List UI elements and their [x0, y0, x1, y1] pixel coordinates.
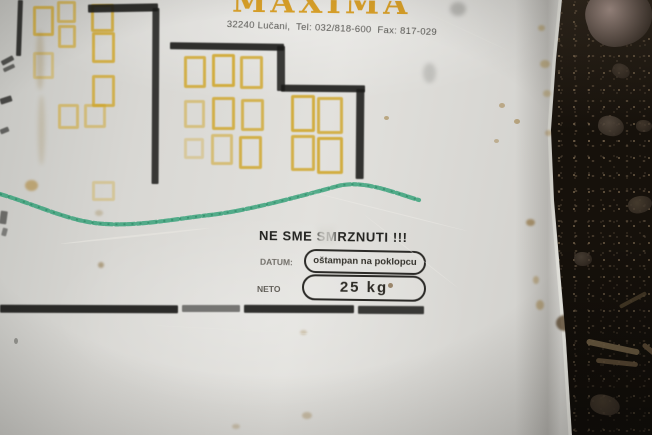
window-mark [291, 95, 315, 132]
stain-mark [98, 262, 104, 268]
building-line [3, 64, 16, 73]
building-line [281, 85, 365, 93]
faded-ink-smudge [318, 227, 335, 245]
neto-value-pill: 25 kg [302, 274, 426, 302]
stain-mark [514, 119, 520, 124]
window-mark [92, 181, 115, 201]
stain-mark [300, 330, 307, 335]
stain-mark [60, 227, 209, 245]
building-line [0, 126, 10, 134]
building-line [170, 42, 284, 51]
building-line [244, 305, 354, 313]
building-line [356, 89, 365, 179]
building-line [0, 211, 8, 225]
building-line [358, 306, 424, 314]
window-mark [57, 1, 76, 23]
window-mark [291, 135, 315, 171]
stain-mark [25, 180, 38, 191]
stain-mark [232, 424, 240, 429]
stain-mark [384, 116, 389, 120]
building-line [16, 0, 23, 56]
building-graphic [0, 0, 652, 435]
neto-label: NETO [257, 284, 280, 294]
building-line [277, 46, 285, 91]
gravel-debris [0, 0, 652, 435]
stain-mark [533, 276, 539, 284]
window-mark [211, 134, 233, 165]
stain-mark [302, 412, 312, 419]
neto-value: 25 kg [340, 279, 389, 297]
datum-label: DATUM: [260, 257, 293, 268]
stain-mark [494, 139, 499, 143]
building-line [0, 305, 178, 314]
window-mark [92, 32, 115, 63]
stain-mark [540, 60, 550, 68]
stain-mark [538, 25, 545, 31]
stain-mark [499, 103, 505, 108]
window-mark [212, 97, 235, 130]
stain-mark [38, 95, 45, 165]
building-line [1, 55, 15, 66]
stain-mark [450, 2, 466, 16]
window-mark [240, 56, 263, 89]
window-mark [317, 97, 343, 134]
brand-logo: MAXIMA [232, 0, 422, 20]
stain-mark [536, 300, 544, 310]
brand-text: MAXIMA [232, 0, 422, 20]
stain-mark [150, 325, 350, 336]
stain-mark [302, 189, 467, 231]
window-mark [58, 104, 79, 129]
window-mark [241, 99, 264, 131]
address-line: 32240 Lučani, Tel: 032/818-600 Fax: 817-… [227, 19, 438, 38]
window-mark [184, 56, 206, 88]
vignette-overlay [0, 0, 652, 435]
datum-value-pill: oštampan na poklopcu [304, 249, 426, 275]
gravel-ground [540, 0, 652, 435]
lighting-overlay [0, 0, 652, 435]
window-mark [92, 75, 115, 107]
window-mark [58, 25, 76, 48]
building-line [88, 3, 158, 12]
stain-mark [545, 130, 552, 136]
stain-mark [14, 338, 18, 344]
stain-mark [95, 210, 103, 216]
window-mark [239, 136, 262, 169]
window-mark [33, 52, 54, 79]
stain-mark [543, 90, 551, 97]
green-marker-path [0, 184, 419, 224]
datum-value: oštampan na poklopcu [313, 255, 417, 268]
green-marker-line [0, 0, 652, 435]
green-marker-path-texture [0, 184, 419, 224]
window-mark [184, 100, 205, 128]
window-mark [184, 138, 204, 159]
stain-mark [423, 63, 436, 83]
window-mark [33, 6, 54, 36]
window-mark [91, 4, 114, 32]
building-line [182, 305, 240, 312]
building-line [1, 227, 8, 236]
window-mark [84, 104, 106, 128]
building-line [152, 8, 160, 184]
building-line [0, 95, 13, 104]
window-mark [317, 137, 343, 174]
stain-mark [36, 30, 44, 90]
photo-of-bucket-label: MAXIMA 32240 Lučani, Tel: 032/818-600 Fa… [0, 0, 652, 435]
window-mark [212, 54, 235, 87]
stain-mark [526, 219, 535, 226]
stain-layer [0, 0, 652, 435]
